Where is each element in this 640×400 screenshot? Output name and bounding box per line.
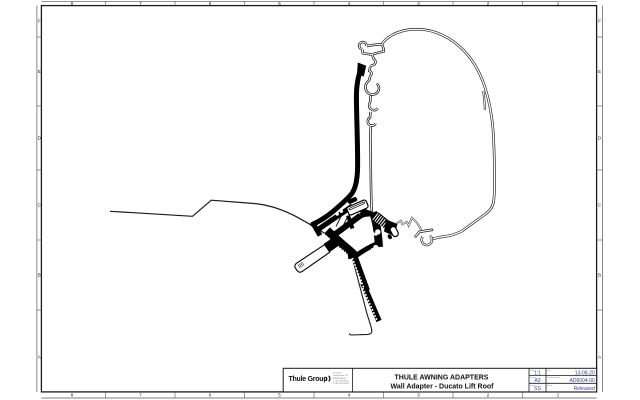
svg-text:SS: SS: [534, 386, 541, 392]
svg-text:D: D: [598, 136, 601, 141]
svg-text:D: D: [38, 136, 41, 141]
svg-text:A3: A3: [534, 378, 540, 384]
svg-text:E: E: [598, 69, 601, 74]
svg-text:A: A: [38, 355, 41, 360]
svg-text:B: B: [38, 273, 41, 278]
svg-text:Drawing number: Drawing number: [547, 377, 561, 379]
svg-text:C: C: [598, 203, 601, 208]
svg-text:E: E: [38, 69, 41, 74]
svg-text:F +32 56 52 88 22: F +32 56 52 88 22: [333, 383, 350, 385]
svg-text:Date: Date: [547, 369, 551, 372]
svg-text:F: F: [38, 19, 41, 24]
svg-text:1:1: 1:1: [534, 371, 541, 377]
svg-text:Status: Status: [547, 384, 552, 387]
svg-text:THULE AWNING ADAPTERS: THULE AWNING ADAPTERS: [395, 374, 489, 381]
svg-text:C: C: [38, 203, 41, 208]
svg-text:Thule Group: Thule Group: [289, 376, 328, 383]
svg-text:Wall Adapter - Ducato Lift Roo: Wall Adapter - Ducato Lift Roof: [391, 383, 495, 390]
svg-text:Released: Released: [574, 386, 595, 392]
svg-text:AD6004-00: AD6004-00: [570, 378, 596, 384]
svg-text:B: B: [598, 273, 601, 278]
svg-text:F: F: [598, 19, 601, 24]
svg-text:13-08-20: 13-08-20: [575, 371, 595, 377]
svg-text:Kortrijkstraat 117: Kortrijkstraat 117: [333, 374, 349, 377]
svg-text:A: A: [598, 355, 601, 360]
